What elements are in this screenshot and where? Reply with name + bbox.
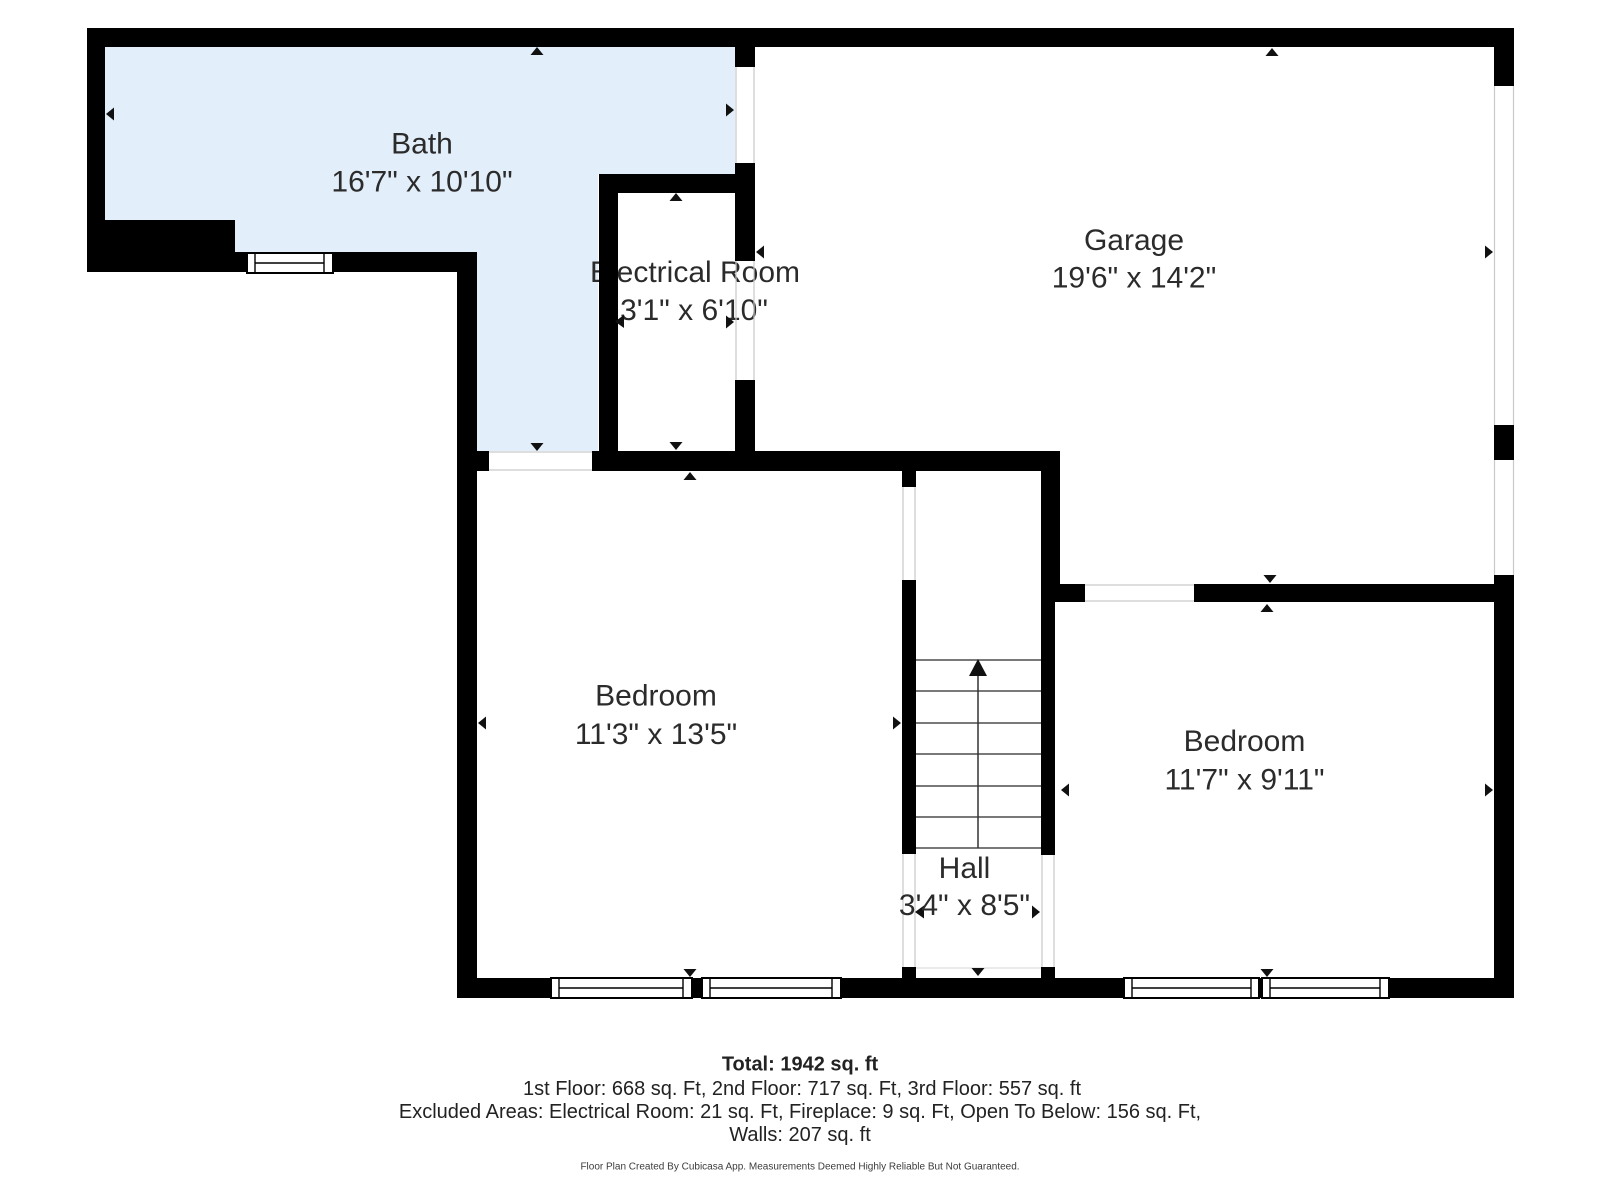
- svg-text:Total: 1942 sq. ft: Total: 1942 sq. ft: [722, 1054, 879, 1076]
- svg-text:11'3" x 13'5": 11'3" x 13'5": [575, 718, 737, 751]
- svg-text:Excluded Areas: Electrical Roo: Excluded Areas: Electrical Room: 21 sq. …: [399, 1101, 1201, 1123]
- svg-text:16'7" x 10'10": 16'7" x 10'10": [331, 166, 512, 199]
- svg-text:1st Floor: 668 sq. Ft, 2nd Flo: 1st Floor: 668 sq. Ft, 2nd Floor: 717 sq…: [523, 1078, 1081, 1100]
- svg-text:Bedroom: Bedroom: [1184, 725, 1306, 758]
- svg-text:Garage: Garage: [1084, 224, 1184, 257]
- svg-text:Bedroom: Bedroom: [595, 680, 717, 713]
- svg-text:3'4" x 8'5": 3'4" x 8'5": [899, 889, 1030, 922]
- svg-text:11'7" x 9'11": 11'7" x 9'11": [1164, 764, 1324, 797]
- svg-text:Floor Plan Created By Cubicasa: Floor Plan Created By Cubicasa App. Meas…: [580, 1162, 1019, 1173]
- svg-text:Electrical Room: Electrical Room: [590, 256, 800, 289]
- svg-text:3'1" x 6'10": 3'1" x 6'10": [620, 294, 768, 327]
- svg-text:Hall: Hall: [939, 852, 991, 885]
- svg-text:Bath: Bath: [391, 128, 453, 161]
- svg-text:Walls: 207 sq. ft: Walls: 207 sq. ft: [729, 1124, 871, 1146]
- svg-text:19'6" x 14'2": 19'6" x 14'2": [1052, 262, 1217, 295]
